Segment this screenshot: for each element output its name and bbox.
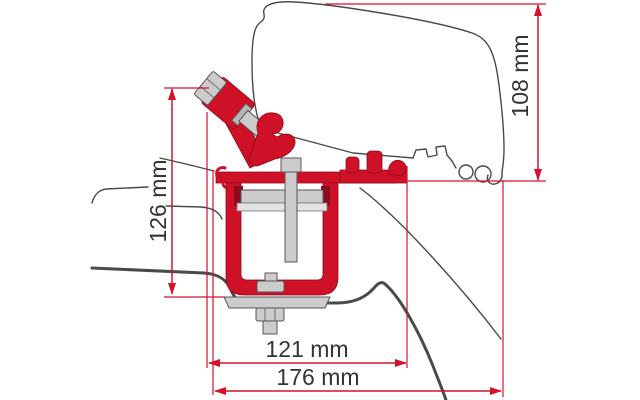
dim-arrow-126-bottom: [168, 283, 176, 295]
van-gutter-profile: [413, 146, 456, 168]
dimension-121: 121 mm: [208, 336, 407, 367]
van-wall-curve: [360, 188, 501, 339]
van-left-panel-step: [166, 206, 222, 219]
van-gutter-curl-2: [475, 166, 491, 182]
van-left-panel-top: [92, 187, 148, 203]
hook-bump-1: [346, 157, 359, 173]
dim-arrow-121-left: [208, 359, 220, 367]
center-bolt-shaft: [285, 172, 297, 262]
dim-arrow-108-top: [534, 4, 542, 16]
base-nut: [256, 308, 284, 321]
dim-arrow-126-top: [168, 88, 176, 100]
dim-label-bracket-width: 121 mm: [265, 336, 348, 362]
crossbar-lower: [237, 203, 327, 211]
dim-arrow-176-right: [490, 387, 502, 395]
diagram-stage: 108 mm 126 mm 121 mm 176 mm: [0, 0, 640, 400]
dimension-176: 176 mm: [214, 364, 502, 395]
diagram-canvas: 108 mm 126 mm 121 mm 176 mm: [0, 0, 640, 400]
bracket-gutter-hook: [340, 151, 407, 183]
dim-arrow-121-right: [395, 359, 407, 367]
extension-lines: [164, 4, 546, 397]
dim-arrow-176-left: [214, 387, 226, 395]
base-bolt-tip: [263, 321, 277, 334]
dimension-126: 126 mm: [145, 88, 176, 295]
crossbar: [241, 190, 323, 203]
hook-bump-2: [367, 151, 382, 173]
base-plate: [224, 297, 330, 308]
dim-label-overall-width: 176 mm: [276, 364, 359, 390]
dim-arrow-108-bottom: [534, 169, 542, 181]
hook-claw: [389, 160, 406, 176]
adapter-bracket: [193, 69, 407, 295]
bottom-bolt-head: [257, 281, 284, 292]
dimension-108: 108 mm: [507, 4, 542, 181]
dim-label-bracket-height: 126 mm: [145, 159, 171, 242]
bottom-bolt-cap: [265, 273, 277, 281]
center-bolt-head: [281, 158, 301, 172]
dim-label-roof-height: 108 mm: [507, 34, 533, 117]
van-gutter-curl-1: [459, 165, 473, 179]
